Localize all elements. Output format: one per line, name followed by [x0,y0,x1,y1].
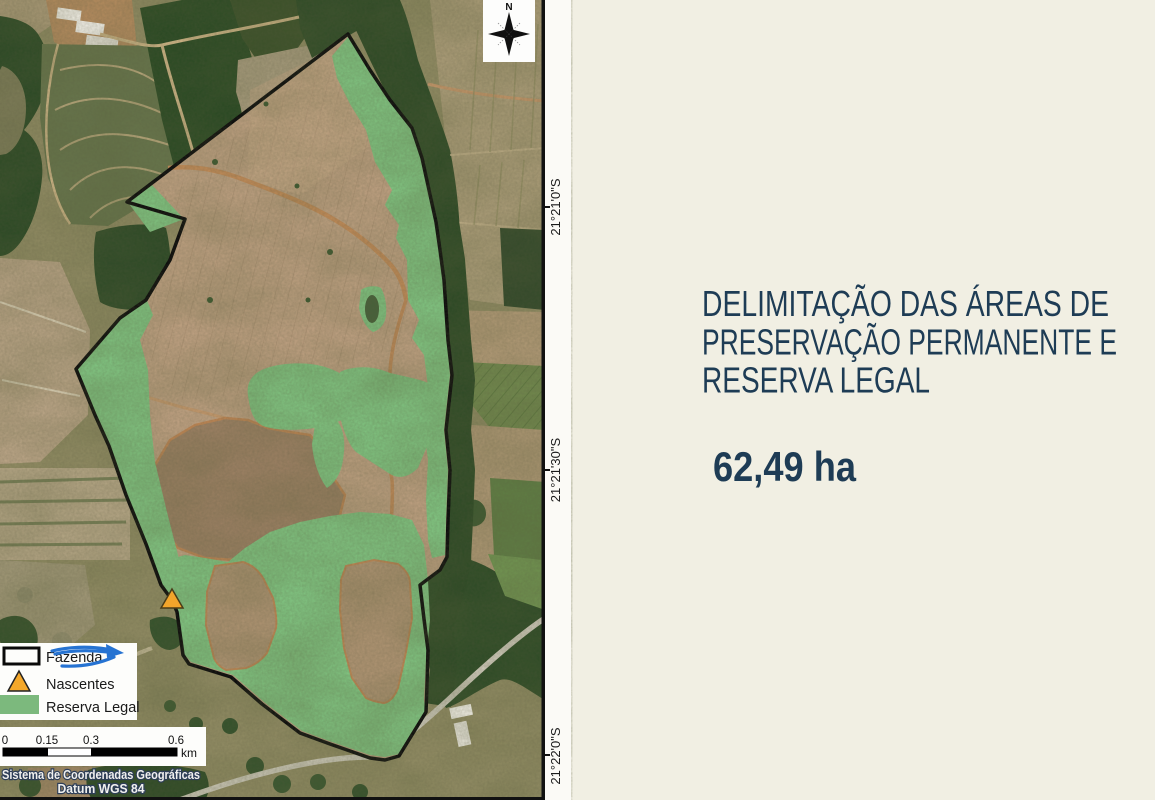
svg-text:N: N [505,2,512,13]
svg-text:DELIMITAÇÃO DAS ÁREAS DE: DELIMITAÇÃO DAS ÁREAS DE [702,283,1109,324]
svg-text:km: km [181,746,197,760]
svg-text:0: 0 [2,735,8,747]
svg-text:21°22'0"S: 21°22'0"S [548,727,563,784]
svg-text:0.3: 0.3 [83,735,99,747]
svg-text:21°21'30"S: 21°21'30"S [548,438,563,503]
svg-text:PRESERVAÇÃO PERMANENTE E: PRESERVAÇÃO PERMANENTE E [702,322,1117,363]
svg-text:RESERVA LEGAL: RESERVA LEGAL [702,360,930,401]
svg-text:Datum WGS 84: Datum WGS 84 [58,782,145,796]
svg-text:21°21'0"S: 21°21'0"S [548,178,563,235]
svg-text:Sistema de Coordenadas Geográf: Sistema de Coordenadas Geográficas [2,768,200,782]
svg-text:Nascentes: Nascentes [46,677,115,693]
svg-text:62,49 ha: 62,49 ha [713,443,857,490]
svg-text:0.15: 0.15 [36,735,58,747]
svg-text:Reserva Legal: Reserva Legal [46,700,140,716]
